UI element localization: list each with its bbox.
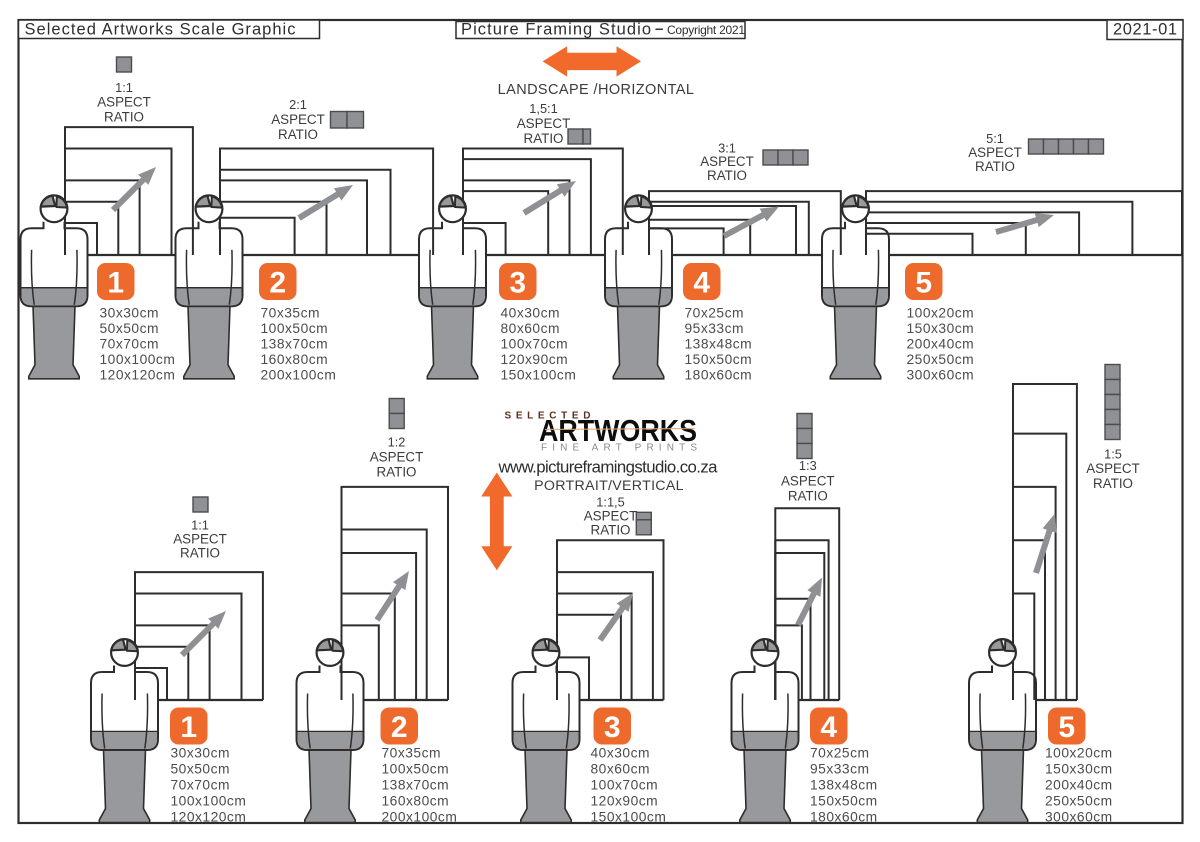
- svg-text:2: 2: [269, 267, 286, 300]
- svg-text:ASPECT: ASPECT: [700, 154, 754, 169]
- svg-text:RATIO: RATIO: [278, 127, 318, 142]
- svg-text:5:1: 5:1: [986, 131, 1004, 146]
- svg-text:95x33cm: 95x33cm: [685, 321, 744, 336]
- svg-text:40x30cm: 40x30cm: [591, 746, 650, 761]
- svg-text:70x25cm: 70x25cm: [685, 305, 744, 320]
- svg-text:5: 5: [915, 267, 932, 300]
- svg-text:ASPECT: ASPECT: [97, 95, 151, 110]
- svg-text:FINE ART PRINTS: FINE ART PRINTS: [541, 443, 697, 454]
- svg-text:160x80cm: 160x80cm: [261, 352, 329, 367]
- svg-text:RATIO: RATIO: [975, 159, 1015, 174]
- svg-text:150x30cm: 150x30cm: [907, 321, 975, 336]
- svg-text:ASPECT: ASPECT: [517, 116, 571, 131]
- svg-text:RATIO: RATIO: [524, 131, 564, 146]
- svg-text:40x30cm: 40x30cm: [501, 305, 560, 320]
- svg-text:ASPECT: ASPECT: [781, 474, 835, 489]
- svg-text:3: 3: [604, 711, 621, 744]
- svg-text:1:1,5: 1:1,5: [596, 495, 624, 510]
- svg-text:ASPECT: ASPECT: [173, 532, 227, 547]
- svg-text:70x35cm: 70x35cm: [261, 305, 320, 320]
- svg-text:2021-01: 2021-01: [1113, 21, 1177, 39]
- svg-text:1:3: 1:3: [799, 458, 817, 473]
- svg-text:120x90cm: 120x90cm: [501, 352, 569, 367]
- svg-text:1:2: 1:2: [388, 435, 406, 450]
- svg-text:Selected Artworks Scale Graphi: Selected Artworks Scale Graphic: [25, 21, 296, 39]
- svg-text:150x50cm: 150x50cm: [685, 352, 753, 367]
- svg-text:RATIO: RATIO: [180, 546, 220, 561]
- svg-text:1: 1: [107, 267, 124, 300]
- svg-text:160x80cm: 160x80cm: [382, 794, 450, 809]
- svg-text:RATIO: RATIO: [377, 465, 417, 480]
- svg-text:120x120cm: 120x120cm: [171, 810, 247, 825]
- svg-text:www.pictureframingstudio.co.za: www.pictureframingstudio.co.za: [498, 458, 719, 477]
- svg-text:1:1: 1:1: [115, 80, 133, 95]
- svg-text:PORTRAIT/VERTICAL: PORTRAIT/VERTICAL: [534, 478, 684, 494]
- svg-text:2:1: 2:1: [289, 97, 307, 112]
- svg-text:100x70cm: 100x70cm: [501, 336, 569, 351]
- svg-text:100x100cm: 100x100cm: [171, 794, 247, 809]
- svg-text:80x60cm: 80x60cm: [501, 321, 560, 336]
- svg-text:138x70cm: 138x70cm: [261, 336, 329, 351]
- svg-text:ASPECT: ASPECT: [370, 450, 424, 465]
- svg-text:100x100cm: 100x100cm: [100, 352, 176, 367]
- svg-text:120x120cm: 120x120cm: [100, 367, 176, 382]
- svg-text:250x50cm: 250x50cm: [1045, 794, 1113, 809]
- svg-text:ASPECT: ASPECT: [584, 509, 638, 524]
- svg-text:150x100cm: 150x100cm: [501, 367, 577, 382]
- svg-text:300x60cm: 300x60cm: [1045, 810, 1113, 825]
- svg-text:50x50cm: 50x50cm: [171, 762, 230, 777]
- svg-text:3: 3: [509, 267, 526, 300]
- svg-text:150x30cm: 150x30cm: [1045, 762, 1113, 777]
- svg-text:100x50cm: 100x50cm: [382, 762, 450, 777]
- svg-text:4: 4: [693, 267, 710, 300]
- svg-text:138x48cm: 138x48cm: [810, 778, 878, 793]
- svg-text:70x70cm: 70x70cm: [100, 336, 159, 351]
- svg-text:Copyright 2021: Copyright 2021: [667, 23, 745, 37]
- svg-text:180x60cm: 180x60cm: [685, 367, 753, 382]
- svg-text:70x70cm: 70x70cm: [171, 778, 230, 793]
- svg-text:100x70cm: 100x70cm: [591, 778, 659, 793]
- svg-text:5: 5: [1058, 711, 1075, 744]
- svg-text:80x60cm: 80x60cm: [591, 762, 650, 777]
- svg-text:2: 2: [391, 711, 408, 744]
- svg-text:138x70cm: 138x70cm: [382, 778, 450, 793]
- svg-text:200x100cm: 200x100cm: [382, 810, 458, 825]
- svg-text:70x35cm: 70x35cm: [382, 746, 441, 761]
- svg-text:150x50cm: 150x50cm: [810, 794, 878, 809]
- svg-text:RATIO: RATIO: [591, 523, 631, 538]
- svg-text:200x40cm: 200x40cm: [907, 336, 975, 351]
- svg-text:1:5: 1:5: [1104, 447, 1122, 462]
- svg-text:4: 4: [820, 711, 837, 744]
- svg-text:RATIO: RATIO: [788, 489, 828, 504]
- svg-text:30x30cm: 30x30cm: [100, 305, 159, 320]
- svg-text:250x50cm: 250x50cm: [907, 352, 975, 367]
- svg-text:100x50cm: 100x50cm: [261, 321, 329, 336]
- svg-text:50x50cm: 50x50cm: [100, 321, 159, 336]
- svg-text:120x90cm: 120x90cm: [591, 794, 659, 809]
- svg-text:70x25cm: 70x25cm: [810, 746, 869, 761]
- svg-text:180x60cm: 180x60cm: [810, 810, 878, 825]
- svg-text:1: 1: [180, 711, 197, 744]
- svg-text:LANDSCAPE /HORIZONTAL: LANDSCAPE /HORIZONTAL: [498, 82, 695, 98]
- svg-text:RATIO: RATIO: [1093, 476, 1133, 491]
- svg-text:ASPECT: ASPECT: [271, 112, 325, 127]
- svg-text:Picture Framing Studio: Picture Framing Studio: [461, 21, 651, 39]
- svg-text:300x60cm: 300x60cm: [907, 367, 975, 382]
- svg-text:RATIO: RATIO: [104, 110, 144, 125]
- svg-text:1:1: 1:1: [191, 518, 209, 533]
- svg-text:150x100cm: 150x100cm: [591, 810, 667, 825]
- svg-text:200x40cm: 200x40cm: [1045, 778, 1113, 793]
- svg-text:ASPECT: ASPECT: [968, 145, 1022, 160]
- svg-text:200x100cm: 200x100cm: [261, 367, 337, 382]
- svg-text:1,5:1: 1,5:1: [529, 101, 557, 116]
- svg-text:30x30cm: 30x30cm: [171, 746, 230, 761]
- svg-text:–: –: [655, 21, 663, 38]
- svg-text:RATIO: RATIO: [707, 168, 747, 183]
- svg-text:95x33cm: 95x33cm: [810, 762, 869, 777]
- svg-text:ASPECT: ASPECT: [1086, 461, 1140, 476]
- svg-text:100x20cm: 100x20cm: [1045, 746, 1113, 761]
- svg-text:100x20cm: 100x20cm: [907, 305, 975, 320]
- svg-text:138x48cm: 138x48cm: [685, 336, 753, 351]
